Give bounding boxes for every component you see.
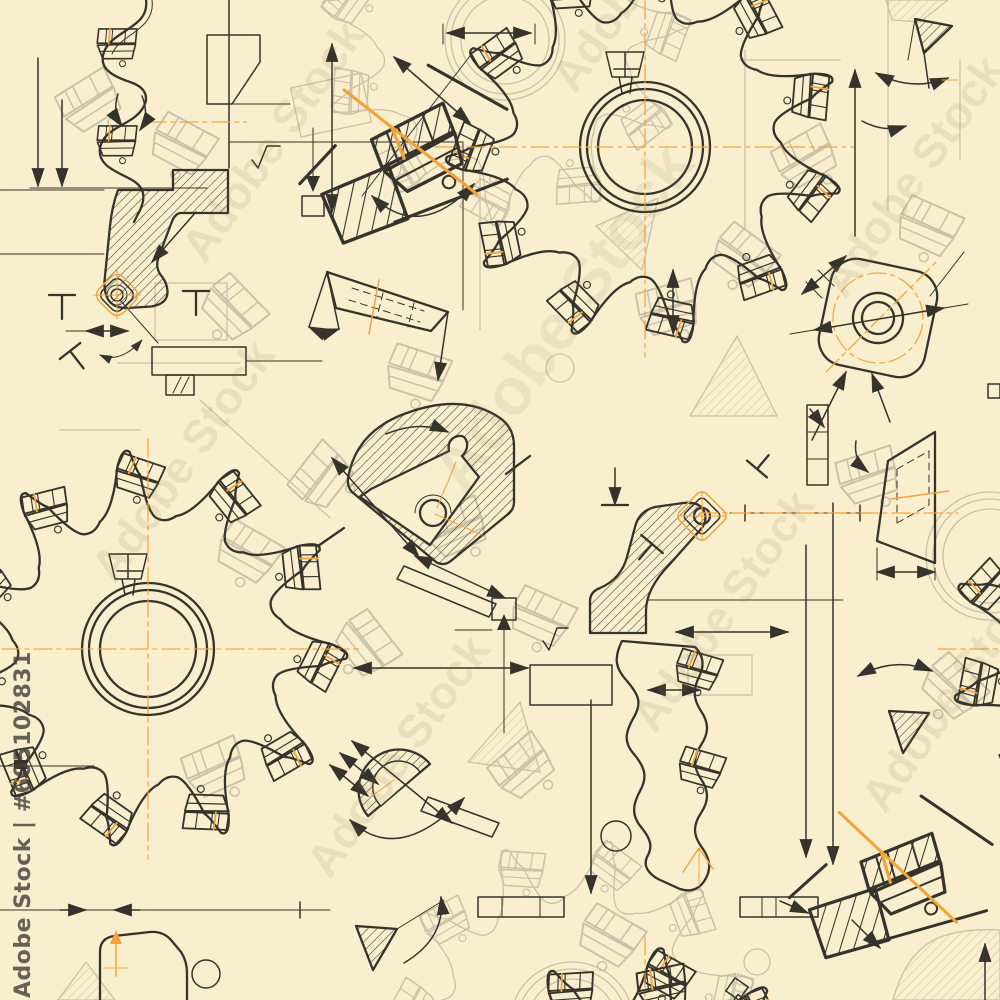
stock-id-watermark: Adobe Stock | #605102831 bbox=[11, 651, 36, 998]
seamless-blueprint-pattern: Adobe StockAdobe StockAdobe StockAdobe S… bbox=[0, 0, 1000, 1000]
engineering-drawing-canvas: Adobe StockAdobe StockAdobe StockAdobe S… bbox=[0, 0, 1000, 1000]
